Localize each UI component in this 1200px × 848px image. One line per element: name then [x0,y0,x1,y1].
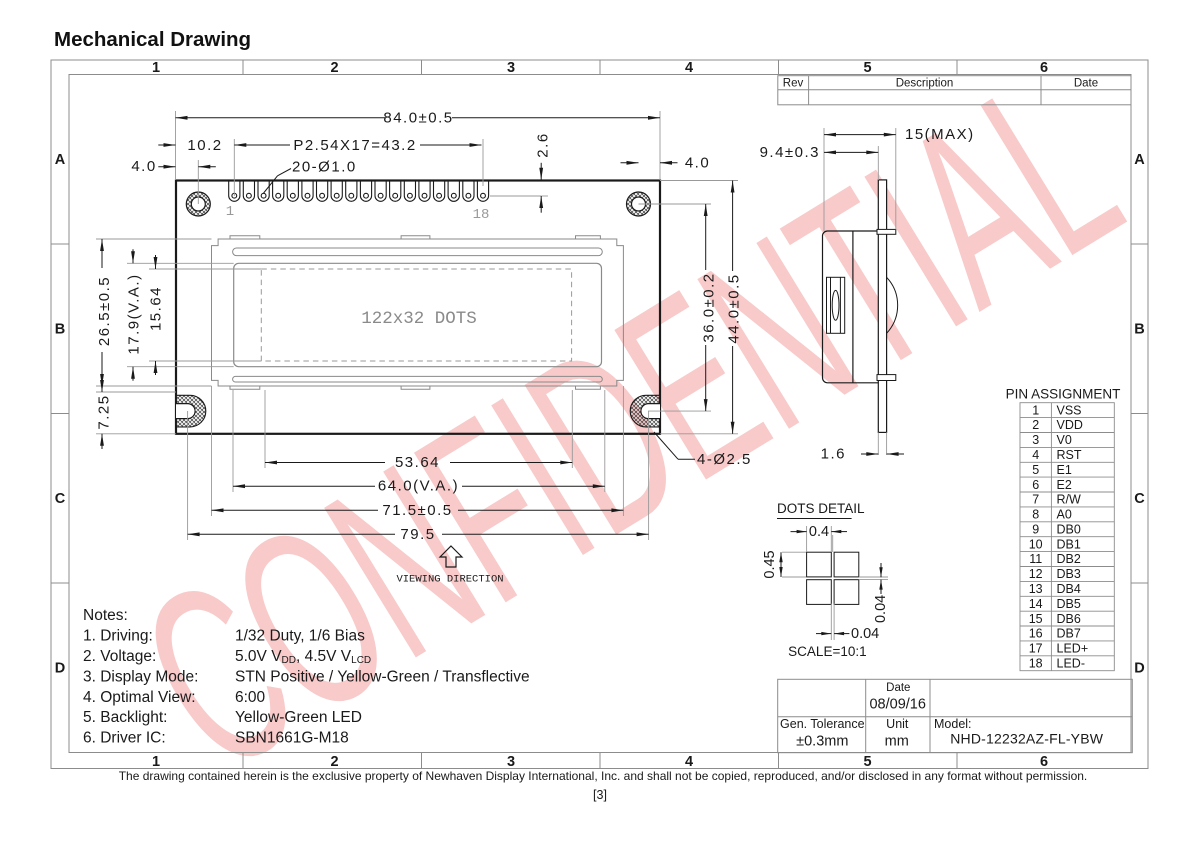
svg-text:6: 6 [1032,478,1039,492]
svg-text:4: 4 [685,60,693,76]
svg-text:71.5±0.5: 71.5±0.5 [382,502,452,519]
svg-text:79.5: 79.5 [400,526,435,543]
svg-text:5: 5 [1032,463,1039,477]
svg-text:6: 6 [1040,754,1048,770]
svg-text:Unit: Unit [886,717,909,731]
svg-text:DB7: DB7 [1057,627,1081,641]
svg-text:Date: Date [886,682,910,694]
svg-text:4.0: 4.0 [685,154,710,171]
svg-text:1. Driving:: 1. Driving: [83,628,153,645]
svg-text:RST: RST [1057,448,1082,462]
svg-text:mm: mm [885,734,909,750]
svg-text:2: 2 [330,754,338,770]
svg-text:1: 1 [152,754,160,770]
svg-text:C: C [1134,491,1145,507]
svg-text:17: 17 [1029,642,1043,656]
svg-text:18: 18 [1029,656,1043,670]
svg-text:SBN1661G-M18: SBN1661G-M18 [235,730,349,747]
svg-text:LED-: LED- [1057,656,1085,670]
svg-text:84.0±0.5: 84.0±0.5 [383,109,453,126]
svg-text:3: 3 [1032,433,1039,447]
svg-text:1: 1 [1032,403,1039,417]
svg-text:DB5: DB5 [1057,597,1081,611]
svg-text:Notes:: Notes: [83,607,128,624]
svg-text:6. Driver IC:: 6. Driver IC: [83,730,166,747]
svg-text:4: 4 [685,754,693,770]
svg-text:The drawing contained herein i: The drawing contained herein is the excl… [119,769,1088,783]
svg-text:3: 3 [507,754,515,770]
svg-text:26.5±0.5: 26.5±0.5 [96,276,113,346]
svg-text:12: 12 [1029,567,1043,581]
svg-text:LED+: LED+ [1057,642,1089,656]
svg-text:4: 4 [1032,448,1039,462]
svg-text:16: 16 [1029,627,1043,641]
svg-text:53.64: 53.64 [395,454,440,471]
svg-text:Gen. Tolerance: Gen. Tolerance [780,717,865,731]
svg-text:Description: Description [896,78,954,90]
svg-text:2.6: 2.6 [534,132,551,157]
svg-text:PIN ASSIGNMENT: PIN ASSIGNMENT [1006,387,1121,402]
svg-text:P2.54X17=43.2: P2.54X17=43.2 [293,137,416,154]
svg-text:9: 9 [1032,522,1039,536]
svg-text:SCALE=10:1: SCALE=10:1 [788,644,866,659]
svg-text:44.0±0.5: 44.0±0.5 [726,273,743,343]
svg-text:15.64: 15.64 [148,286,165,331]
svg-text:Rev: Rev [783,78,804,90]
svg-text:2: 2 [330,60,338,76]
svg-text:B: B [1134,322,1144,338]
svg-text:VIEWING DIRECTION: VIEWING DIRECTION [396,574,503,586]
svg-text:STN Positive / Yellow-Green /: STN Positive / Yellow-Green / Transflect… [235,668,530,685]
svg-text:E1: E1 [1057,463,1072,477]
svg-text:3: 3 [507,60,515,76]
svg-text:DB0: DB0 [1057,522,1081,536]
svg-text:10: 10 [1029,537,1043,551]
svg-text:36.0±0.2: 36.0±0.2 [701,272,718,342]
svg-text:NHD-12232AZ-FL-YBW: NHD-12232AZ-FL-YBW [950,731,1104,747]
svg-text:20-Ø1.0: 20-Ø1.0 [292,159,357,176]
svg-text:13: 13 [1029,582,1043,596]
svg-text:122x32 DOTS: 122x32 DOTS [361,309,477,329]
svg-text:Date: Date [1074,78,1098,90]
svg-text:5.0V VDD, 4.5V VLCD: 5.0V VDD, 4.5V VLCD [235,648,371,666]
svg-text:R/W: R/W [1057,493,1082,507]
svg-text:6:00: 6:00 [235,689,266,706]
svg-text:7: 7 [1032,493,1039,507]
svg-text:A: A [55,152,66,168]
svg-text:DB4: DB4 [1057,582,1081,596]
svg-text:VSS: VSS [1057,403,1082,417]
svg-text:4.0: 4.0 [131,158,156,175]
svg-text:1: 1 [226,204,234,220]
svg-text:D: D [1134,661,1144,677]
svg-text:[3]: [3] [593,788,607,802]
svg-text:B: B [55,322,65,338]
svg-text:14: 14 [1029,597,1043,611]
svg-text:4-Ø2.5: 4-Ø2.5 [697,451,752,468]
svg-text:8: 8 [1032,508,1039,522]
svg-text:1.6: 1.6 [821,446,846,463]
svg-text:3. Display Mode:: 3. Display Mode: [83,668,198,685]
svg-text:15(MAX): 15(MAX) [905,126,975,143]
svg-text:0.4: 0.4 [809,524,829,540]
svg-text:2: 2 [1032,418,1039,432]
svg-text:4. Optimal View:: 4. Optimal View: [83,689,196,706]
svg-text:DB1: DB1 [1057,537,1081,551]
svg-text:1/32 Duty, 1/6 Bias: 1/32 Duty, 1/6 Bias [235,628,365,645]
svg-text:0.45: 0.45 [762,550,778,578]
svg-text:5. Backlight:: 5. Backlight: [83,709,167,726]
svg-text:VDD: VDD [1057,418,1083,432]
svg-text:A: A [1134,152,1145,168]
svg-text:A0: A0 [1057,508,1072,522]
svg-text:10.2: 10.2 [187,137,222,154]
svg-text:5: 5 [863,60,871,76]
svg-text:Yellow-Green LED: Yellow-Green LED [235,709,362,726]
svg-text:V0: V0 [1057,433,1072,447]
svg-text:64.0(V.A.): 64.0(V.A.) [378,478,459,495]
svg-text:C: C [55,491,66,507]
svg-text:DOTS DETAIL: DOTS DETAIL [777,501,865,516]
svg-text:DB3: DB3 [1057,567,1081,581]
svg-text:Model:: Model: [934,717,972,731]
svg-text:17.9(V.A.): 17.9(V.A.) [126,273,143,354]
svg-text:11: 11 [1029,552,1042,566]
svg-text:7.25: 7.25 [96,394,113,429]
svg-text:08/09/16: 08/09/16 [869,697,925,713]
svg-text:DB2: DB2 [1057,552,1081,566]
svg-text:±0.3mm: ±0.3mm [796,734,848,750]
svg-text:DB6: DB6 [1057,612,1081,626]
svg-text:18: 18 [473,207,490,223]
svg-text:E2: E2 [1057,478,1072,492]
svg-text:6: 6 [1040,60,1048,76]
svg-text:9.4±0.3: 9.4±0.3 [760,144,820,161]
svg-text:2. Voltage:: 2. Voltage: [83,648,156,665]
svg-text:15: 15 [1029,612,1043,626]
svg-text:0.04: 0.04 [873,595,889,623]
svg-text:D: D [55,661,65,677]
svg-text:5: 5 [863,754,871,770]
svg-text:1: 1 [152,60,160,76]
svg-text:0.04: 0.04 [851,626,879,642]
